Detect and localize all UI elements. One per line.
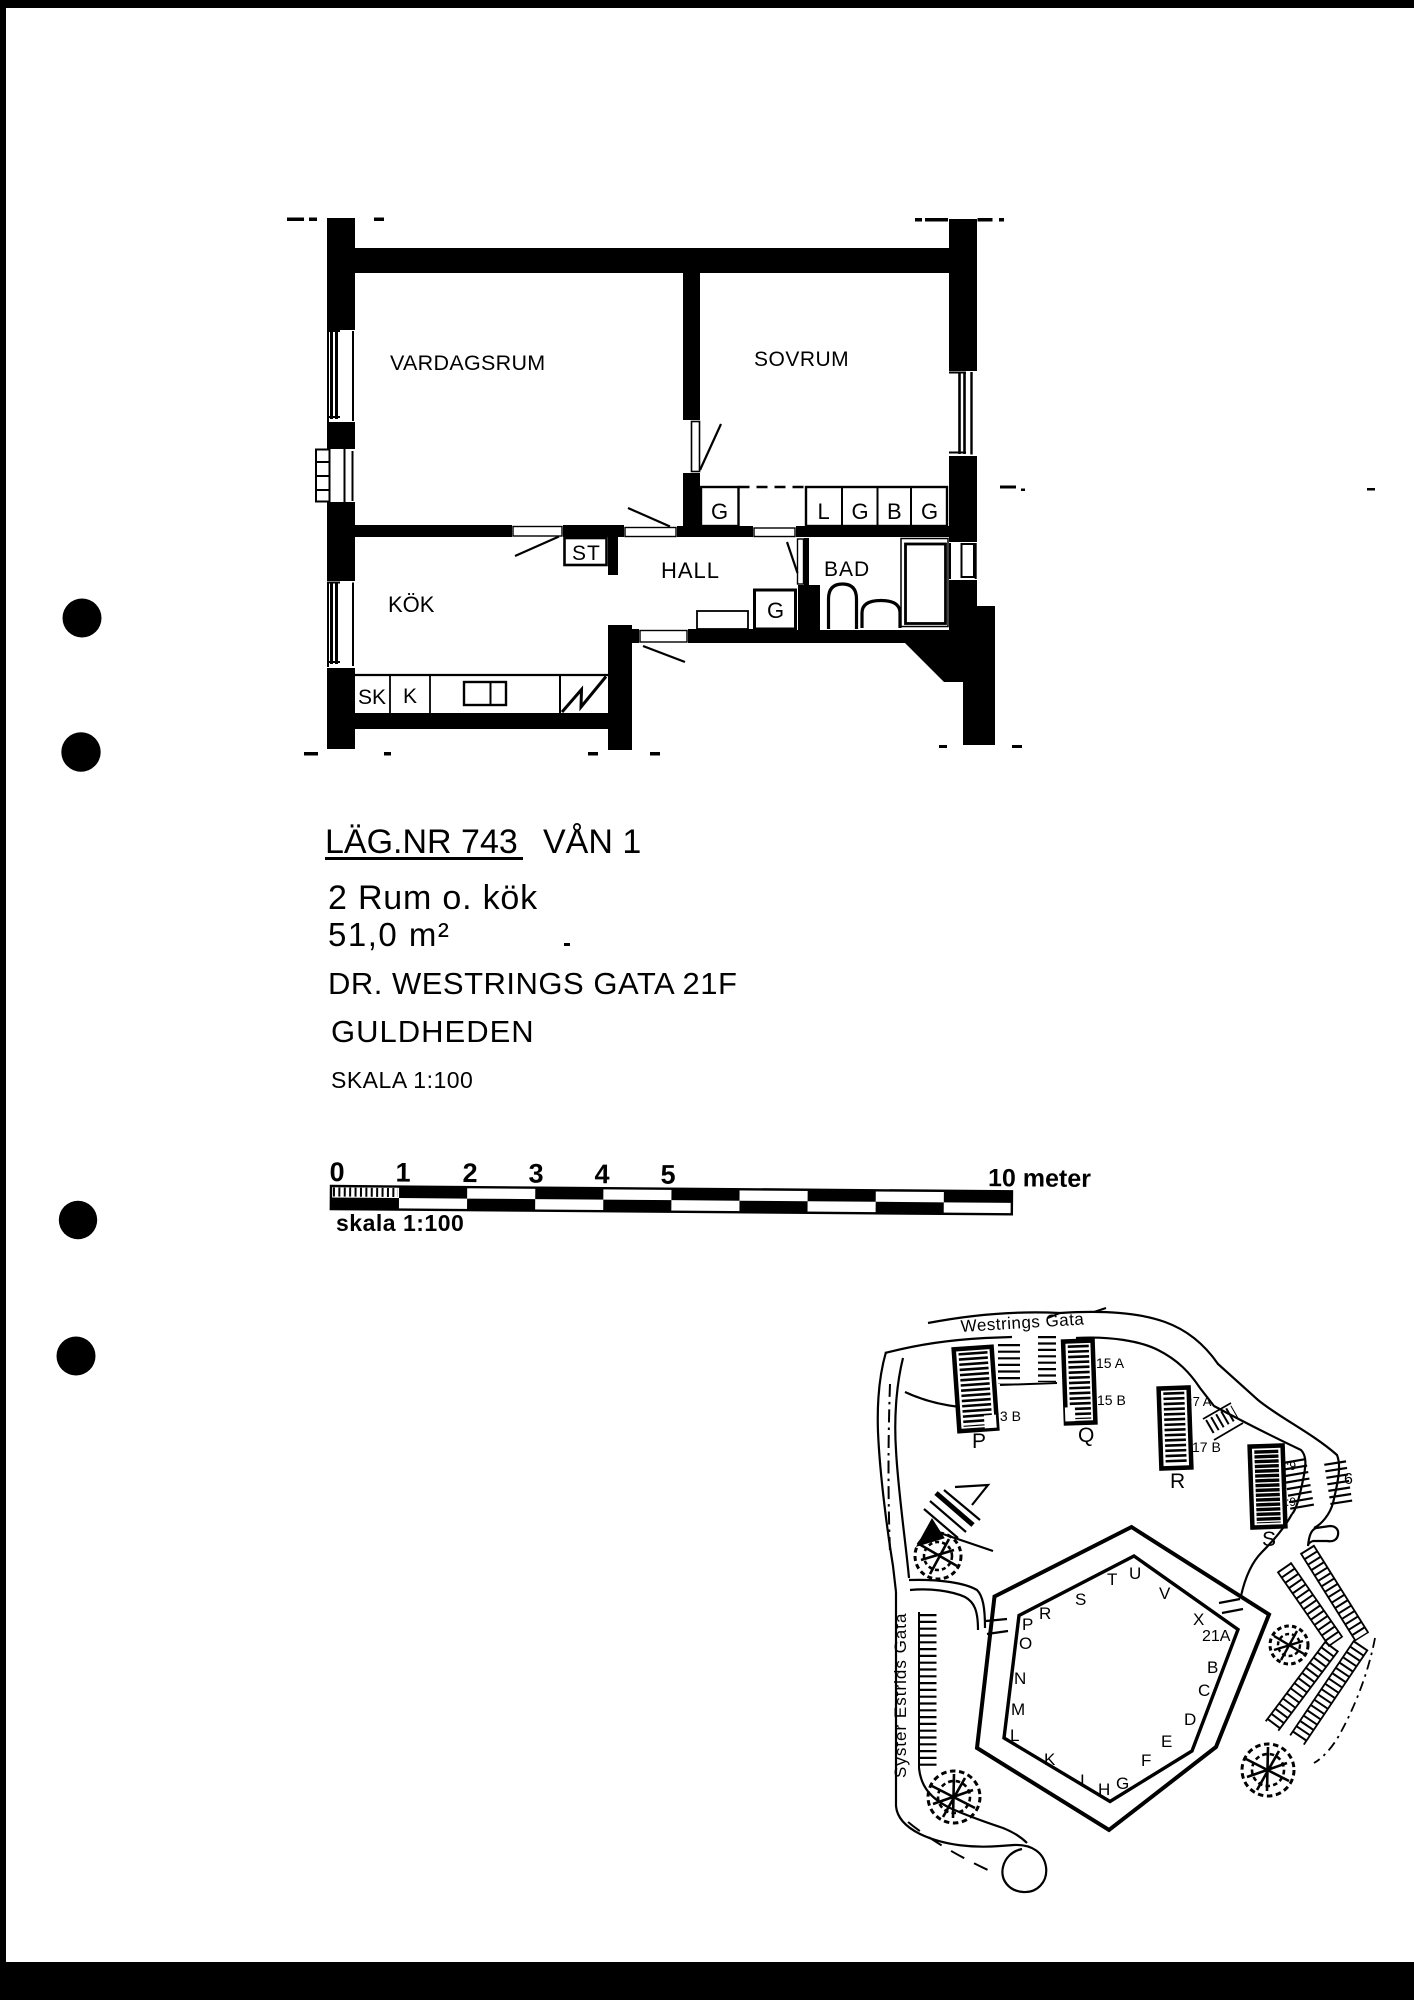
svg-text:51,0 m²: 51,0 m²: [328, 916, 450, 953]
svg-text:P: P: [1022, 1615, 1033, 1634]
svg-text:U: U: [1129, 1564, 1141, 1583]
svg-text:5: 5: [660, 1160, 675, 1190]
svg-text:21A: 21A: [1202, 1628, 1231, 1645]
svg-text:V: V: [1159, 1584, 1171, 1603]
svg-text:Syster Estrids Gata: Syster Estrids Gata: [891, 1613, 910, 1778]
svg-text:1: 1: [395, 1158, 410, 1188]
svg-text:SKALA 1:100: SKALA 1:100: [331, 1067, 473, 1093]
svg-text:P: P: [972, 1430, 986, 1453]
svg-text:T: T: [1107, 1570, 1117, 1589]
svg-text:Q: Q: [1078, 1424, 1094, 1447]
svg-text:G: G: [711, 499, 728, 524]
svg-text:G: G: [852, 499, 869, 524]
svg-text:S: S: [1075, 1590, 1086, 1609]
svg-text:C: C: [1198, 1681, 1210, 1700]
svg-text:M: M: [1011, 1700, 1025, 1719]
svg-text:10 meter: 10 meter: [988, 1164, 1091, 1193]
svg-text:ST: ST: [572, 542, 601, 565]
svg-text:S: S: [1262, 1528, 1276, 1551]
svg-text:4: 4: [594, 1159, 609, 1189]
svg-text:SOVRUM: SOVRUM: [754, 348, 849, 371]
svg-text:O: O: [1019, 1634, 1032, 1653]
svg-text:15 A: 15 A: [1096, 1355, 1125, 1371]
svg-text:H: H: [1098, 1780, 1110, 1799]
svg-text:VÅN 1: VÅN 1: [543, 823, 641, 861]
svg-text:F: F: [1141, 1751, 1151, 1770]
svg-text:VARDAGSRUM: VARDAGSRUM: [390, 351, 546, 375]
svg-text:17 B: 17 B: [1192, 1439, 1221, 1455]
svg-text:G: G: [1116, 1774, 1129, 1793]
svg-text:0: 0: [329, 1157, 344, 1187]
svg-text:G: G: [767, 598, 784, 623]
svg-text:BAD: BAD: [824, 558, 870, 581]
svg-text:R: R: [1039, 1604, 1051, 1623]
svg-text:N: N: [1014, 1669, 1026, 1688]
svg-text:E: E: [1161, 1732, 1172, 1751]
svg-text:I: I: [1080, 1771, 1085, 1790]
svg-text:KÖK: KÖK: [388, 592, 435, 617]
svg-text:skala 1:100: skala 1:100: [336, 1210, 464, 1236]
svg-text:G: G: [921, 499, 938, 524]
svg-text:L: L: [1010, 1726, 1019, 1745]
svg-text:K: K: [403, 685, 417, 708]
svg-text:X: X: [1193, 1610, 1204, 1629]
svg-text:3: 3: [528, 1159, 543, 1189]
svg-text:DR. WESTRINGS GATA 21F: DR. WESTRINGS GATA 21F: [328, 966, 737, 1001]
svg-text:2: 2: [462, 1158, 477, 1188]
svg-text:2 Rum o. kök: 2 Rum o. kök: [328, 879, 538, 917]
svg-text:D: D: [1184, 1710, 1196, 1729]
svg-text:R: R: [1170, 1470, 1185, 1493]
svg-text:15 B: 15 B: [1097, 1392, 1126, 1408]
svg-text:L: L: [818, 499, 830, 524]
svg-text:HALL: HALL: [661, 558, 720, 583]
svg-text:B: B: [887, 499, 902, 524]
svg-text:SK: SK: [358, 686, 386, 709]
svg-text:LÄG.NR 743: LÄG.NR 743: [325, 823, 518, 861]
svg-text:K: K: [1044, 1750, 1056, 1769]
svg-text::3 B: :3 B: [996, 1408, 1021, 1424]
svg-text::7 A: :7 A: [1189, 1394, 1212, 1409]
svg-text:B: B: [1207, 1658, 1218, 1677]
svg-text:6: 6: [1344, 1471, 1353, 1488]
svg-text:GULDHEDEN: GULDHEDEN: [331, 1014, 535, 1049]
